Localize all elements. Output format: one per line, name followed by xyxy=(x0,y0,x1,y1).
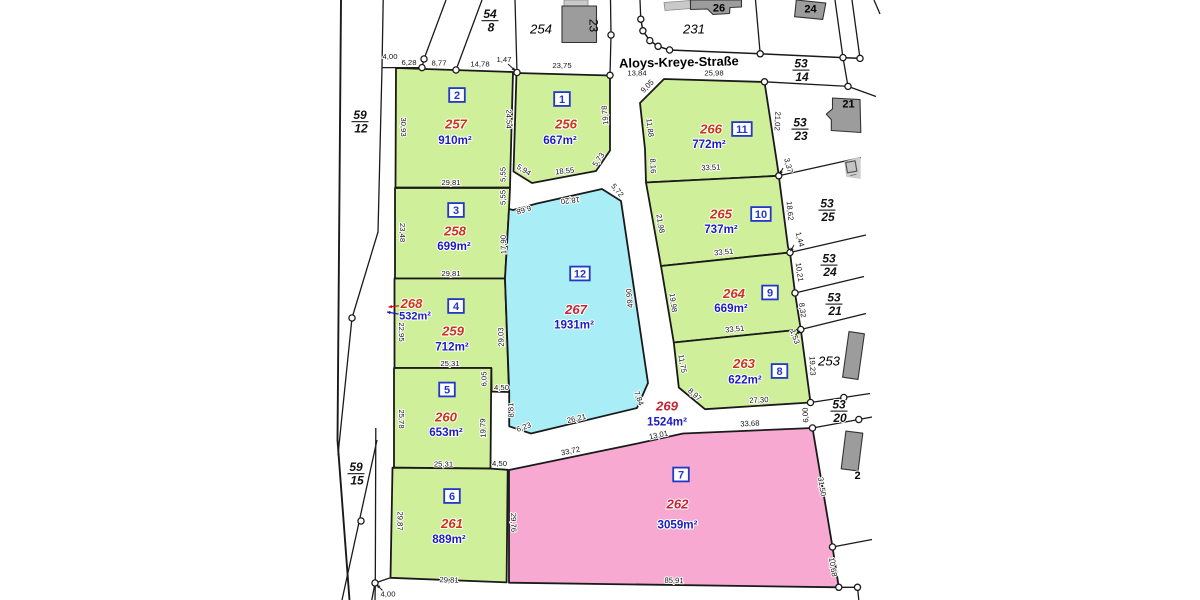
svg-text:4: 4 xyxy=(453,301,460,313)
svg-text:4,00: 4,00 xyxy=(381,590,396,599)
svg-text:5: 5 xyxy=(444,385,450,397)
svg-text:53: 53 xyxy=(794,57,808,71)
svg-text:532m²: 532m² xyxy=(399,311,431,323)
svg-text:261: 261 xyxy=(440,516,463,531)
svg-text:23: 23 xyxy=(793,129,808,143)
svg-text:3: 3 xyxy=(453,205,459,217)
svg-text:8: 8 xyxy=(776,366,782,378)
svg-text:29,03: 29,03 xyxy=(496,327,506,347)
svg-text:2: 2 xyxy=(854,470,860,482)
svg-text:29,76: 29,76 xyxy=(509,513,518,532)
svg-text:8: 8 xyxy=(488,20,495,34)
svg-text:33,68: 33,68 xyxy=(740,419,760,429)
svg-text:20: 20 xyxy=(832,411,847,425)
svg-text:2: 2 xyxy=(454,90,460,102)
svg-text:22,95: 22,95 xyxy=(397,322,406,341)
svg-text:4,50: 4,50 xyxy=(492,459,507,468)
svg-text:6,05: 6,05 xyxy=(480,372,489,387)
svg-text:25,98: 25,98 xyxy=(704,69,723,78)
svg-text:54: 54 xyxy=(483,7,497,21)
svg-text:699m²: 699m² xyxy=(437,240,471,253)
svg-text:266: 266 xyxy=(699,122,723,137)
svg-text:712m²: 712m² xyxy=(435,341,469,354)
svg-text:21,02: 21,02 xyxy=(772,111,782,131)
svg-text:889m²: 889m² xyxy=(432,533,466,546)
svg-text:27,30: 27,30 xyxy=(749,395,769,405)
svg-text:24: 24 xyxy=(822,265,837,279)
svg-text:258: 258 xyxy=(443,224,467,239)
svg-text:21: 21 xyxy=(842,99,854,111)
svg-text:265: 265 xyxy=(709,207,733,222)
svg-text:49,90: 49,90 xyxy=(624,288,635,308)
svg-text:231: 231 xyxy=(682,22,705,37)
svg-text:59: 59 xyxy=(349,460,363,474)
svg-text:1524m²: 1524m² xyxy=(647,416,687,429)
svg-text:8,81: 8,81 xyxy=(506,402,516,417)
svg-text:29,81: 29,81 xyxy=(441,269,460,278)
svg-text:24: 24 xyxy=(804,4,817,16)
svg-text:53: 53 xyxy=(793,116,807,130)
svg-text:6,00: 6,00 xyxy=(801,407,811,422)
svg-text:8,16: 8,16 xyxy=(648,158,658,173)
svg-text:5,55: 5,55 xyxy=(499,167,508,182)
svg-text:3059m²: 3059m² xyxy=(658,519,698,532)
svg-text:12: 12 xyxy=(354,121,368,135)
svg-text:53: 53 xyxy=(820,197,834,211)
svg-text:253: 253 xyxy=(817,354,841,369)
svg-text:259: 259 xyxy=(441,324,465,339)
svg-text:268: 268 xyxy=(400,296,423,311)
svg-text:14,78: 14,78 xyxy=(470,60,489,69)
svg-text:1,47: 1,47 xyxy=(497,55,512,64)
svg-text:7: 7 xyxy=(678,470,684,482)
svg-text:260: 260 xyxy=(434,410,458,425)
svg-text:59: 59 xyxy=(353,108,367,122)
svg-text:53: 53 xyxy=(822,252,836,266)
svg-text:910m²: 910m² xyxy=(438,134,472,147)
svg-text:53: 53 xyxy=(827,291,841,305)
svg-text:25,31: 25,31 xyxy=(434,460,453,469)
svg-text:1931m²: 1931m² xyxy=(554,319,594,332)
svg-text:25,31: 25,31 xyxy=(440,359,459,368)
svg-text:4,50: 4,50 xyxy=(494,383,509,392)
svg-text:6: 6 xyxy=(449,491,455,503)
svg-text:15: 15 xyxy=(350,473,364,487)
svg-text:14: 14 xyxy=(795,70,809,84)
svg-text:29,87: 29,87 xyxy=(395,511,404,530)
svg-text:21: 21 xyxy=(827,304,842,318)
svg-text:8,77: 8,77 xyxy=(432,59,447,68)
svg-text:254: 254 xyxy=(529,22,552,37)
svg-text:264: 264 xyxy=(722,286,746,301)
svg-text:737m²: 737m² xyxy=(704,223,738,236)
svg-text:26: 26 xyxy=(713,3,725,15)
svg-text:772m²: 772m² xyxy=(692,138,726,151)
svg-text:12: 12 xyxy=(574,269,586,281)
svg-text:29,81: 29,81 xyxy=(441,178,460,187)
svg-text:24,54: 24,54 xyxy=(505,109,514,129)
svg-text:669m²: 669m² xyxy=(714,302,748,315)
svg-text:256: 256 xyxy=(554,117,578,132)
svg-text:1: 1 xyxy=(559,94,565,106)
svg-text:5,55: 5,55 xyxy=(499,190,508,205)
svg-text:17,90: 17,90 xyxy=(499,235,509,255)
svg-text:269: 269 xyxy=(655,399,679,414)
svg-text:29,81: 29,81 xyxy=(439,575,459,585)
svg-text:19,23: 19,23 xyxy=(807,356,817,376)
svg-text:10: 10 xyxy=(755,209,767,221)
svg-text:25: 25 xyxy=(820,210,835,224)
svg-text:667m²: 667m² xyxy=(543,134,577,147)
svg-text:263: 263 xyxy=(732,356,756,371)
svg-text:11: 11 xyxy=(736,124,748,136)
svg-text:13,84: 13,84 xyxy=(627,69,647,78)
svg-text:653m²: 653m² xyxy=(429,426,463,439)
svg-text:19,79: 19,79 xyxy=(478,418,488,438)
svg-text:6,28: 6,28 xyxy=(402,58,417,67)
svg-text:85,91: 85,91 xyxy=(664,576,683,586)
svg-text:23,48: 23,48 xyxy=(398,223,407,242)
svg-text:4,00: 4,00 xyxy=(383,52,398,61)
svg-text:18,62: 18,62 xyxy=(785,201,796,221)
svg-text:33,51: 33,51 xyxy=(701,163,721,173)
svg-text:262: 262 xyxy=(665,497,689,512)
svg-text:30,93: 30,93 xyxy=(399,117,408,136)
svg-text:25,78: 25,78 xyxy=(397,409,406,428)
svg-text:9: 9 xyxy=(767,288,773,300)
svg-text:257: 257 xyxy=(444,117,468,132)
svg-text:53: 53 xyxy=(832,398,846,412)
svg-text:23: 23 xyxy=(587,19,601,33)
svg-text:23,75: 23,75 xyxy=(552,61,571,70)
svg-text:622m²: 622m² xyxy=(728,374,762,387)
svg-text:267: 267 xyxy=(564,302,588,317)
svg-text:19,78: 19,78 xyxy=(600,105,611,125)
